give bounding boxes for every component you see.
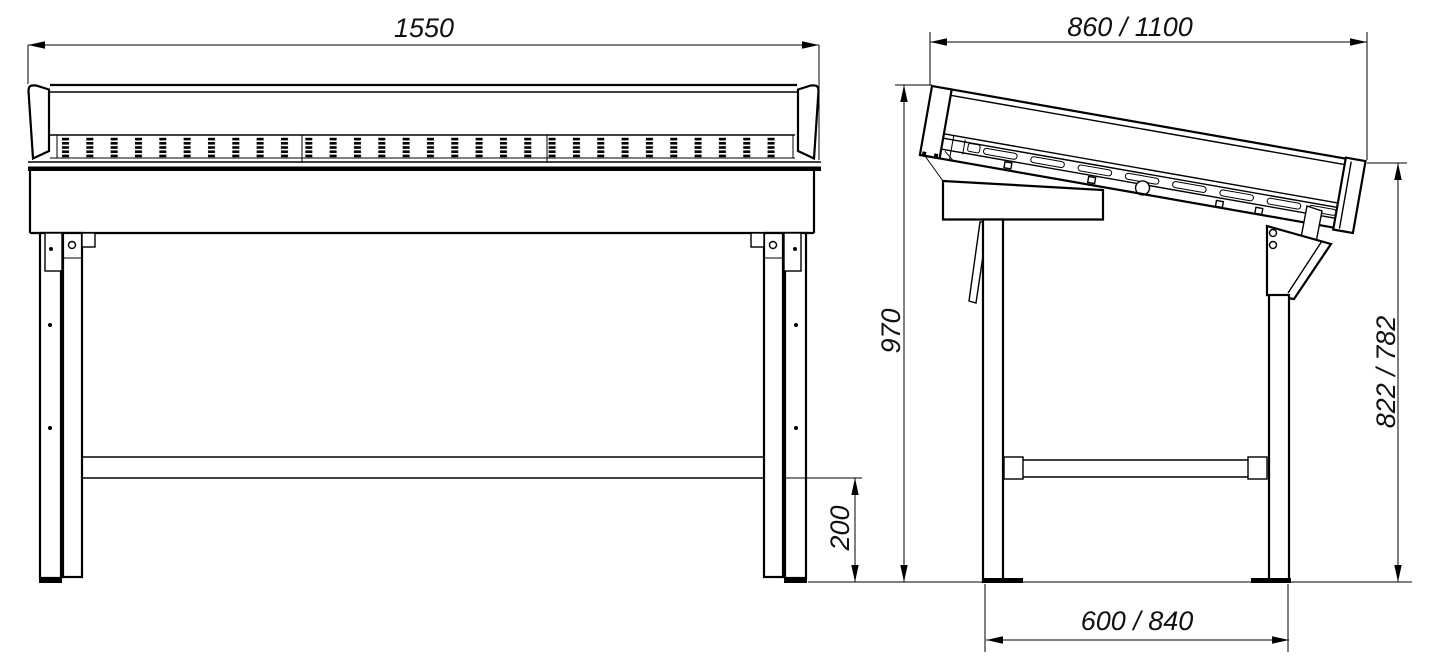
right-leg-bracket <box>784 233 801 271</box>
dimension-leg-spread: 600 / 840 <box>985 584 1289 652</box>
arrowhead-down <box>1394 565 1401 582</box>
arrowhead-down <box>851 565 858 582</box>
cap-mark-2 <box>934 153 939 158</box>
dimension-label-crossbar: 200 <box>825 505 855 551</box>
dimension-depth-top: 860 / 1100 <box>930 12 1367 160</box>
arrowhead-right <box>1272 636 1289 644</box>
left-bolt-hole <box>69 242 76 249</box>
dimension-label-depth: 860 / 1100 <box>1067 12 1193 42</box>
front-view: 1550 <box>28 13 862 583</box>
arrowhead-right <box>1350 38 1367 46</box>
arrowhead-right <box>802 41 819 49</box>
left-foot <box>39 577 62 583</box>
arrowhead-up <box>1394 163 1401 180</box>
support-box <box>943 181 1103 220</box>
tray-end-fitting <box>967 143 980 153</box>
left-rivet-2 <box>48 323 52 327</box>
drawing-canvas: 1550 <box>0 0 1456 670</box>
front-bent-bracket <box>1267 226 1331 299</box>
side-front-leg <box>1269 295 1289 580</box>
right-end-cheek <box>798 85 819 158</box>
dimension-label-height-back: 970 <box>876 308 906 353</box>
left-rivet-3 <box>48 426 52 430</box>
left-rivet-1 <box>49 247 53 251</box>
dimension-label-height-front: 822 / 782 <box>1371 316 1401 429</box>
arrowhead-left <box>986 636 1003 644</box>
arrowhead-down <box>900 565 907 582</box>
technical-drawing: 1550 <box>0 0 1456 670</box>
left-inner-leg <box>63 233 82 577</box>
stretcher-bar <box>1003 460 1249 477</box>
back-panel-cap <box>920 86 952 158</box>
front-legs <box>39 233 807 583</box>
side-back-leg <box>983 220 1003 580</box>
left-leg-bracket <box>45 233 62 271</box>
dimension-height-back: 970 <box>876 85 932 582</box>
side-back-foot <box>982 578 1023 583</box>
side-understructure <box>925 156 1331 583</box>
tray-clip-1 <box>1004 162 1012 169</box>
arrowhead-up <box>851 478 858 495</box>
right-inner-leg <box>764 233 783 577</box>
rim-band <box>28 167 821 172</box>
right-rivet-1 <box>793 247 797 251</box>
dimension-label-leg-spread: 600 / 840 <box>1081 606 1194 636</box>
stretcher-clamp-right <box>1248 457 1267 479</box>
arrowhead-up <box>900 85 907 102</box>
cap-to-box-link <box>925 156 943 181</box>
side-view: 860 / 1100 <box>876 12 1407 652</box>
cap-mark-1 <box>922 151 927 156</box>
bracket-bolt-2 <box>1270 242 1277 249</box>
tray-clip-2 <box>1088 176 1096 183</box>
top-edge-inner <box>951 95 1353 166</box>
right-rivet-2 <box>794 323 798 327</box>
left-end-cheek <box>29 85 50 158</box>
right-bolt-hole <box>770 242 777 249</box>
perforation-holes <box>60 137 790 158</box>
bracket-bolt-1 <box>1270 230 1277 237</box>
right-foot <box>784 577 807 583</box>
stretcher-clamp-left <box>1004 457 1023 479</box>
left-step-plate <box>82 233 95 247</box>
dimension-label-overall-width: 1550 <box>394 13 454 43</box>
right-outer-leg <box>785 233 806 578</box>
right-step-plate <box>751 233 764 247</box>
left-outer-leg <box>40 233 61 578</box>
extension-lines <box>930 32 1367 160</box>
crossbar <box>82 457 763 478</box>
right-rivet-3 <box>794 426 798 430</box>
top-edge <box>946 88 1366 162</box>
side-front-foot <box>1251 578 1291 583</box>
apron-panel <box>30 171 814 233</box>
arrowhead-left <box>28 41 45 49</box>
dimension-height-front: 822 / 782 <box>1367 163 1407 582</box>
counter-top-front <box>28 85 821 233</box>
arrowhead-left <box>930 38 947 46</box>
